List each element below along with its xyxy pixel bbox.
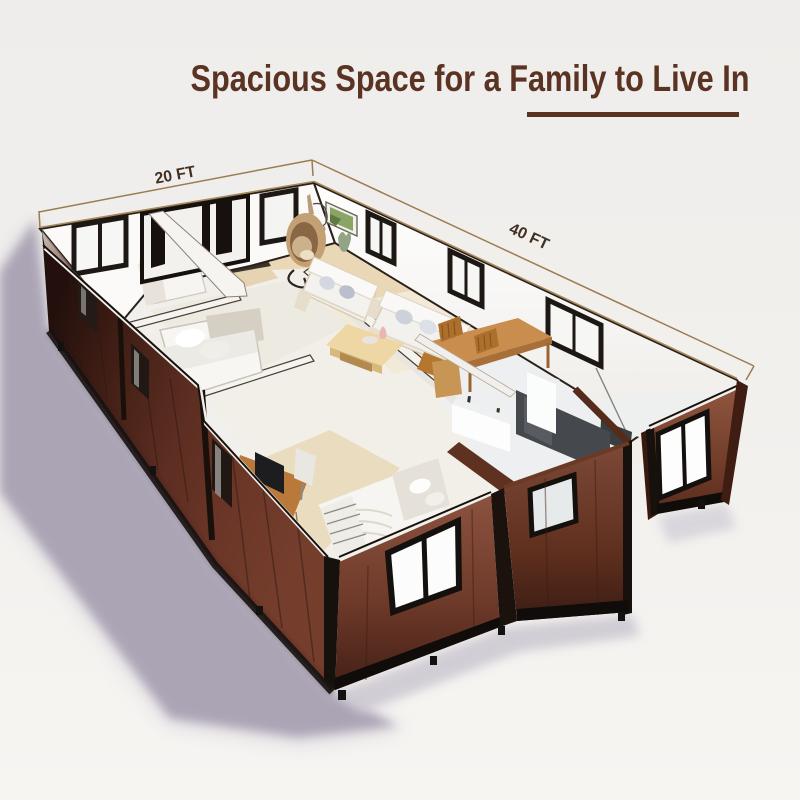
svg-text:Spacious Space for a Family to: Spacious Space for a Family to Live In xyxy=(191,58,750,99)
